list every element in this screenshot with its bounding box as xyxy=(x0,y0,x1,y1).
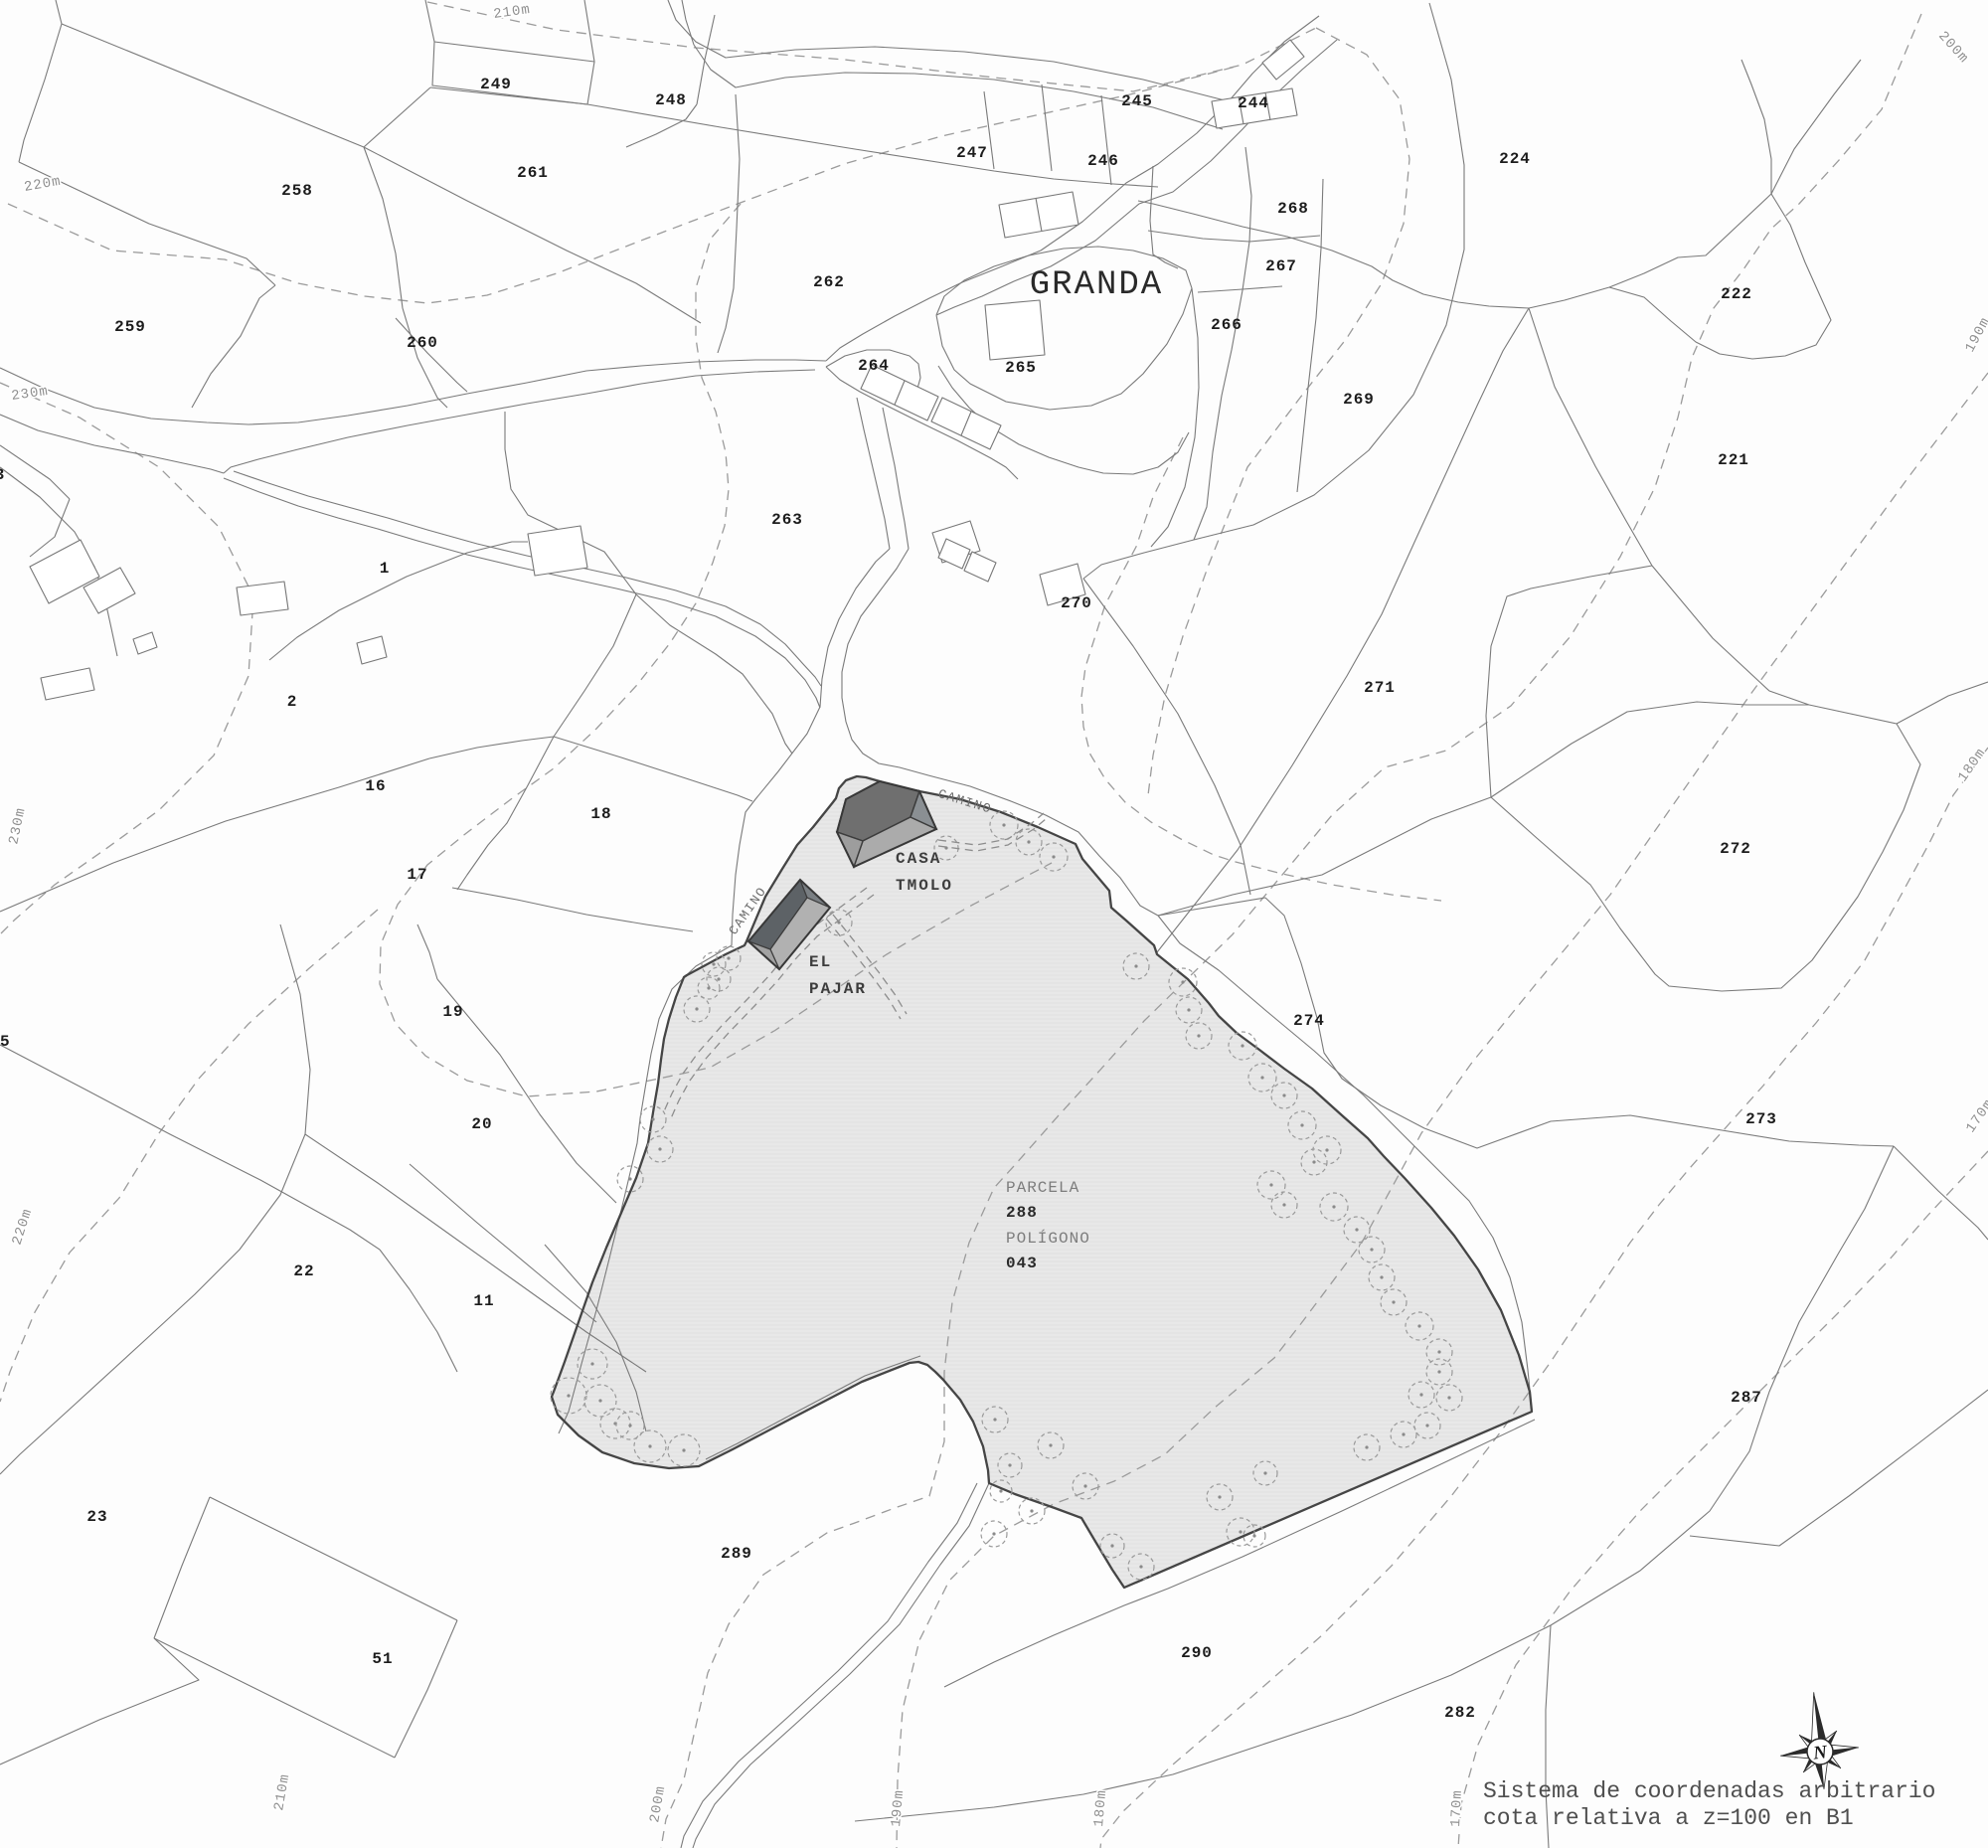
svg-text:271: 271 xyxy=(1364,679,1396,697)
svg-text:245: 245 xyxy=(1121,92,1153,110)
svg-text:287: 287 xyxy=(1731,1389,1762,1407)
svg-text:261: 261 xyxy=(517,164,549,182)
svg-text:.5: .5 xyxy=(0,1033,11,1051)
svg-text:249: 249 xyxy=(480,76,512,93)
svg-text:23: 23 xyxy=(86,1508,107,1526)
svg-text:PAJAR: PAJAR xyxy=(809,980,867,998)
svg-text:282: 282 xyxy=(1444,1704,1476,1722)
svg-text:274: 274 xyxy=(1293,1012,1325,1030)
svg-text:259: 259 xyxy=(114,318,146,336)
svg-text:289: 289 xyxy=(721,1545,752,1563)
svg-text:2: 2 xyxy=(287,693,298,711)
svg-text:269: 269 xyxy=(1343,391,1375,409)
svg-text:270: 270 xyxy=(1061,594,1092,612)
svg-text:262: 262 xyxy=(813,273,845,291)
svg-text:Sistema de coordenadas arbitra: Sistema de coordenadas arbitrario xyxy=(1483,1778,1935,1804)
svg-text:043: 043 xyxy=(1006,1255,1038,1272)
svg-text:180m: 180m xyxy=(1091,1789,1110,1828)
svg-text:POLÍGONO: POLÍGONO xyxy=(1006,1229,1090,1248)
svg-text:247: 247 xyxy=(956,144,988,162)
svg-text:268: 268 xyxy=(1277,200,1309,218)
svg-text:248: 248 xyxy=(655,91,687,109)
svg-text:PARCELA: PARCELA xyxy=(1006,1179,1079,1197)
svg-text:246: 246 xyxy=(1087,152,1119,170)
svg-text:20: 20 xyxy=(471,1115,492,1133)
svg-text:22: 22 xyxy=(293,1262,314,1280)
svg-text:288: 288 xyxy=(1006,1204,1038,1222)
svg-text:258: 258 xyxy=(281,182,313,200)
svg-text:244: 244 xyxy=(1238,94,1269,112)
svg-text:272: 272 xyxy=(1720,840,1751,858)
svg-text:263: 263 xyxy=(771,511,803,529)
svg-text:170m: 170m xyxy=(1448,1789,1466,1827)
svg-text:190m: 190m xyxy=(889,1789,908,1828)
svg-text:266: 266 xyxy=(1211,316,1242,334)
svg-text:11: 11 xyxy=(473,1292,494,1310)
svg-text:273: 273 xyxy=(1745,1110,1777,1128)
svg-text:18: 18 xyxy=(590,805,611,823)
svg-text:264: 264 xyxy=(858,357,890,375)
svg-text:3: 3 xyxy=(0,466,5,484)
svg-text:51: 51 xyxy=(372,1650,393,1668)
svg-text:TMOLO: TMOLO xyxy=(896,877,953,895)
svg-text:224: 224 xyxy=(1499,150,1531,168)
svg-text:1: 1 xyxy=(380,560,391,578)
svg-text:222: 222 xyxy=(1721,285,1752,303)
svg-text:16: 16 xyxy=(365,777,386,795)
svg-text:CASA: CASA xyxy=(896,850,941,868)
svg-text:17: 17 xyxy=(407,866,427,884)
svg-text:260: 260 xyxy=(407,334,438,352)
svg-text:19: 19 xyxy=(442,1003,463,1021)
svg-text:267: 267 xyxy=(1265,257,1297,275)
svg-text:290: 290 xyxy=(1181,1644,1213,1662)
svg-text:221: 221 xyxy=(1718,451,1749,469)
svg-text:265: 265 xyxy=(1005,359,1037,377)
svg-text:cota relativa a z=100 en B1: cota relativa a z=100 en B1 xyxy=(1483,1805,1854,1831)
svg-text:EL: EL xyxy=(809,953,832,971)
svg-text:GRANDA: GRANDA xyxy=(1030,266,1163,304)
